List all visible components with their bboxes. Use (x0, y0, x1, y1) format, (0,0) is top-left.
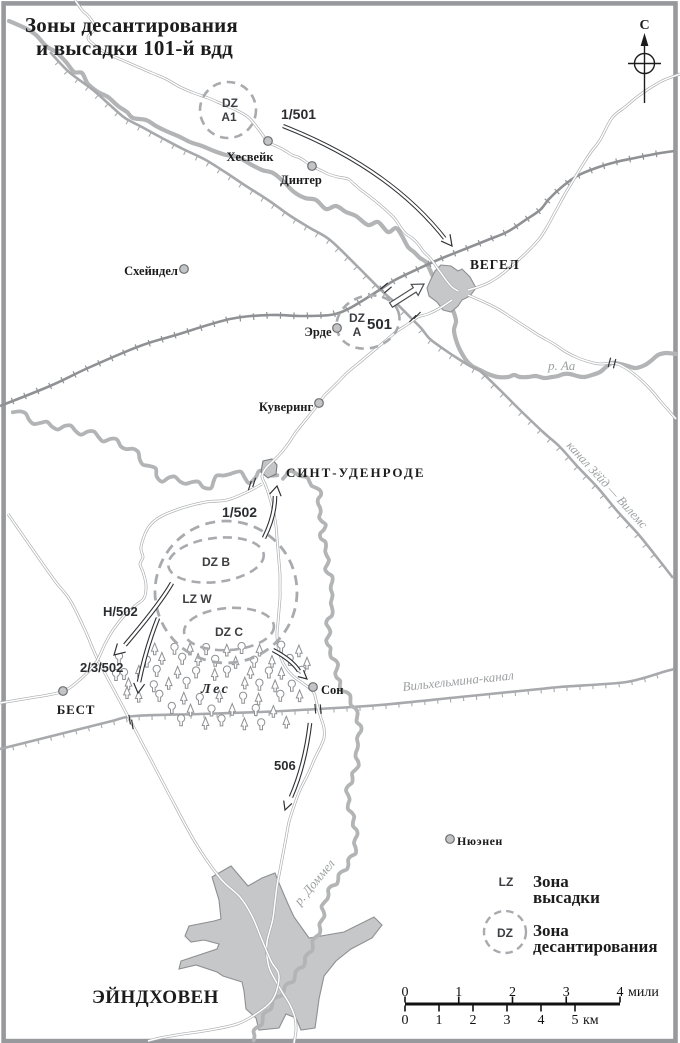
svg-text:2: 2 (509, 985, 516, 1000)
svg-text:Сон: Сон (321, 683, 343, 697)
svg-text:3: 3 (563, 985, 570, 1000)
svg-text:2: 2 (470, 1013, 477, 1028)
svg-text:LZ: LZ (499, 875, 514, 889)
svg-text:БЕСТ: БЕСТ (57, 702, 96, 717)
svg-text:СИНТ-УДЕНРОДЕ: СИНТ-УДЕНРОДЕ (286, 465, 426, 480)
svg-text:1/501: 1/501 (281, 106, 316, 122)
svg-text:H/502: H/502 (103, 604, 138, 619)
svg-text:1/502: 1/502 (222, 504, 257, 520)
svg-text:DZ: DZ (222, 96, 238, 110)
svg-text:1: 1 (436, 1013, 443, 1028)
svg-text:4: 4 (538, 1013, 545, 1028)
svg-text:десантирования: десантирования (533, 937, 658, 956)
svg-text:ЭЙНДХОВЕН: ЭЙНДХОВЕН (92, 986, 219, 1008)
svg-text:Куверинг: Куверинг (259, 400, 314, 414)
svg-text:А: А (353, 325, 362, 339)
svg-text:С: С (639, 18, 649, 33)
svg-text:2/3/502: 2/3/502 (80, 660, 123, 675)
svg-text:мили: мили (628, 985, 659, 1000)
svg-text:3: 3 (504, 1013, 511, 1028)
svg-text:р. Аа: р. Аа (547, 358, 576, 373)
svg-text:Хесвейк: Хесвейк (227, 150, 275, 164)
svg-text:Динтер: Динтер (280, 173, 322, 187)
svg-text:0: 0 (402, 1013, 409, 1028)
svg-text:Нюэнен: Нюэнен (457, 834, 503, 848)
svg-text:DZ B: DZ B (202, 555, 230, 569)
svg-text:5: 5 (572, 1013, 579, 1028)
svg-text:0: 0 (402, 985, 409, 1000)
svg-text:Зоны десантирования: Зоны десантирования (25, 13, 238, 37)
svg-text:506: 506 (274, 758, 296, 773)
svg-text:Схейндел: Схейндел (124, 264, 178, 278)
svg-text:Лес: Лес (200, 682, 230, 697)
svg-text:LZ W: LZ W (182, 592, 212, 606)
svg-text:высадки: высадки (533, 888, 600, 907)
svg-text:501: 501 (367, 316, 392, 333)
svg-text:ВЕГЕЛ: ВЕГЕЛ (470, 257, 519, 272)
svg-text:A1: A1 (221, 110, 237, 124)
svg-text:DZ: DZ (497, 926, 513, 940)
svg-text:DZ C: DZ C (215, 625, 243, 639)
svg-text:DZ: DZ (349, 311, 365, 325)
svg-text:4: 4 (617, 985, 624, 1000)
svg-text:и высадки 101-й вдд: и высадки 101-й вдд (36, 36, 233, 60)
svg-text:Эрде: Эрде (304, 325, 332, 339)
svg-text:1: 1 (455, 985, 462, 1000)
svg-text:км: км (583, 1013, 599, 1028)
